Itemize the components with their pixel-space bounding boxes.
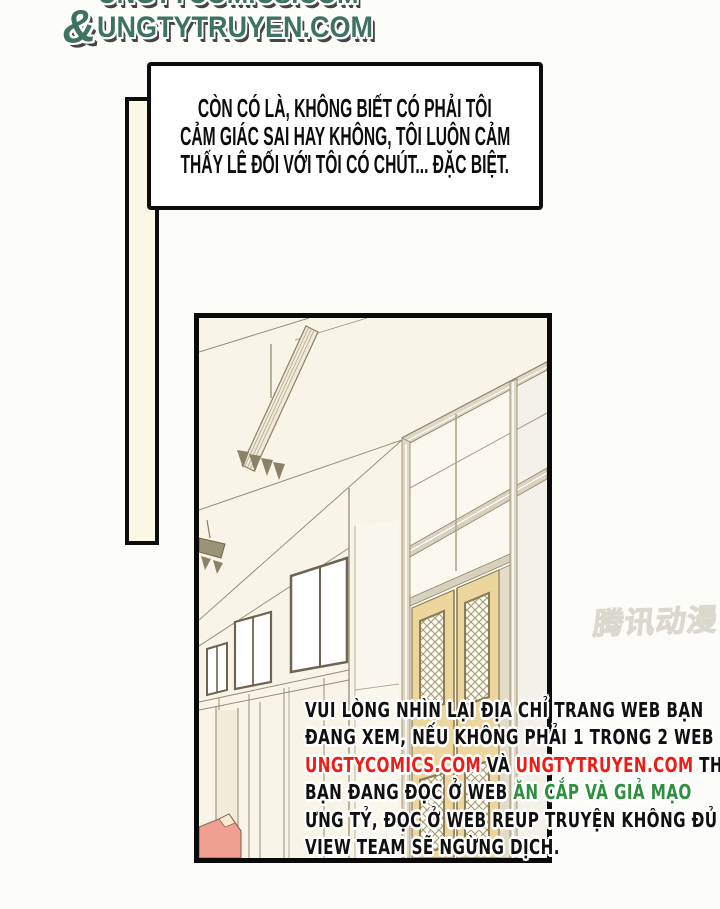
warning-text-highlight: ĂN CẮP VÀ GIẢ MẠO [513,780,691,804]
warning-text: VIEW TEAM SẼ NGỪNG DỊCH. [305,835,560,859]
warning-text: VUI LÒNG NHÌN LẠI ĐỊA CHỈ TRANG WEB BẠN [305,698,704,722]
warning-text: ƯNG TỶ, ĐỌC Ở WEB REUP TRUYỆN KHÔNG ĐỦ [305,808,717,832]
warning-text: THÌ [693,753,720,777]
comic-page: UNGTYCOMICS.COM & UNGTYTRUYEN.COM CÒN CÓ… [0,0,720,909]
speech-line-3: THẤY LÊ ĐỐI VỚI TÔI CÓ CHÚT... ĐẶC BIỆT. [181,150,510,178]
site-url-comics: UNGTYCOMICS.COM [305,753,481,777]
warning-line-6: VIEW TEAM SẼ NGỪNG DỊCH. [305,834,720,861]
ampersand-glyph: & [61,5,97,47]
warning-text: VÀ [481,753,516,777]
warning-line-1: VUI LÒNG NHÌN LẠI ĐỊA CHỈ TRANG WEB BẠN [305,697,720,724]
warning-text: ĐANG XEM, NẾU KHÔNG PHẢI 1 TRONG 2 WEB [305,725,714,749]
site-logo-main-text: UNGTYTRUYEN.COM [97,12,373,44]
speech-bubble: CÒN CÓ LÀ, KHÔNG BIẾT CÓ PHẢI TÔI CẢM GI… [147,62,543,210]
warning-line-5: ƯNG TỶ, ĐỌC Ở WEB REUP TRUYỆN KHÔNG ĐỦ [305,807,720,834]
warning-line-4: BẠN ĐANG ĐỌC Ở WEB ĂN CẮP VÀ GIẢ MẠO [305,779,720,806]
warning-text: BẠN ĐANG ĐỌC Ở WEB [305,780,513,804]
tencent-watermark: 腾讯动漫 [591,595,720,643]
speech-line-2: CẢM GIÁC SAI HAY KHÔNG, TÔI LUÔN CẢM [180,122,510,150]
anti-piracy-warning: VUI LÒNG NHÌN LẠI ĐỊA CHỈ TRANG WEB BẠN … [305,697,720,861]
speech-line-1: CÒN CÓ LÀ, KHÔNG BIẾT CÓ PHẢI TÔI [198,94,492,122]
warning-line-2: ĐANG XEM, NẾU KHÔNG PHẢI 1 TRONG 2 WEB [305,724,720,751]
warning-line-3: UNGTYCOMICS.COM VÀ UNGTYTRUYEN.COM THÌ [305,752,720,779]
site-url-truyen: UNGTYTRUYEN.COM [516,753,694,777]
site-logo: & UNGTYTRUYEN.COM [62,6,404,46]
